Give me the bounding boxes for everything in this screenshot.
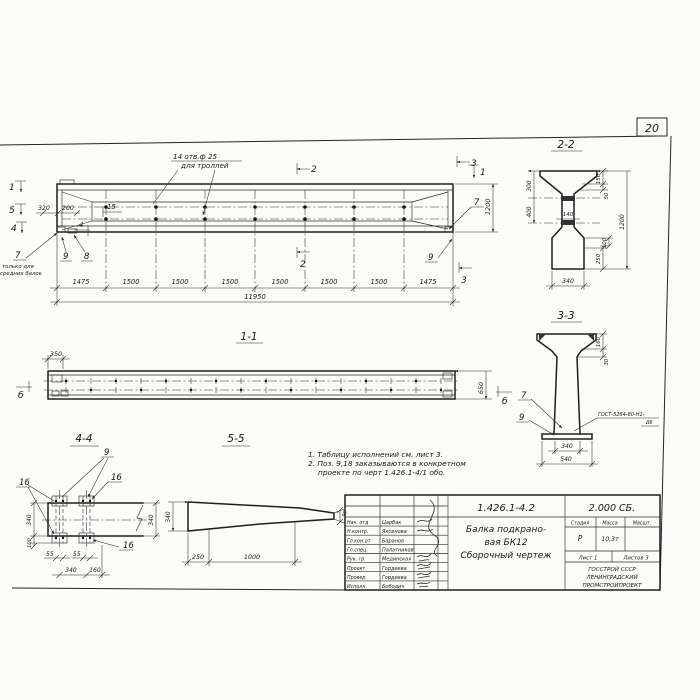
value-mass: 10,3т: [601, 536, 619, 543]
base-plate-3-3: [542, 434, 592, 439]
signature-squiggle: [417, 519, 433, 531]
pos-9-4-4: 9: [104, 448, 109, 458]
dim-340-bottom-4-4: 340: [65, 567, 77, 574]
stamp-role: Исполн.: [347, 584, 367, 590]
dim-50: 50: [604, 192, 610, 199]
page-number: 20: [645, 122, 659, 135]
dim-1200-2-2: 1200: [619, 214, 626, 230]
span-dim: 1500: [321, 278, 338, 286]
weld-note-line2: Δ6: [645, 420, 653, 426]
frame-right-line: [660, 136, 671, 590]
stamp-role: Гл.кон.от: [347, 538, 371, 544]
dim-340-left-4-4: 340: [27, 514, 33, 525]
pos-7-note1: только для: [2, 264, 35, 270]
org-line3: ПРОМСТРОЙПРОЕКТ: [583, 582, 643, 589]
header-scale: Масшт.: [633, 521, 651, 527]
sheet-count: Листов 3: [622, 556, 649, 562]
dim-340-right-4-4: 340: [149, 514, 155, 525]
dim-320: 320: [38, 205, 50, 212]
section-mark-1-right: 1: [480, 168, 486, 178]
span-dim: 1500: [222, 278, 239, 286]
dim-540: 540: [560, 456, 572, 463]
left-section-marks: 1 5 4: [9, 181, 27, 234]
dim-30: 30: [604, 358, 610, 365]
dim-55-b: 55: [73, 551, 81, 558]
pos-16-left: 16: [19, 478, 30, 488]
pos-16-right: 16: [111, 473, 122, 483]
org-line1: ГОССТРОЙ СССР: [588, 566, 636, 573]
dim-250-5-5: 250: [192, 553, 204, 561]
stamp-name: Гордеева: [382, 566, 407, 572]
flange-chamfers: [539, 334, 594, 341]
doc-number: 1.426.1-4.2: [477, 503, 535, 514]
note-line-3: проекте по черт 1.426.1-4/1 обо.: [318, 468, 445, 477]
mark-5-arrow: [15, 204, 26, 215]
anchor-bolts: [56, 501, 90, 538]
title-block: 1.426.1-4.2 2.000 СБ. Балка подкрано- ва…: [345, 495, 660, 590]
section-title-3-3: 3-3: [557, 310, 574, 322]
pos-7-right-leader: [449, 207, 484, 229]
mark-b-right: б: [502, 397, 508, 407]
section-3-3: 3-3 160 30 7 9 ГОСТ-5264-80-Н1- Δ6 340 5…: [516, 310, 659, 467]
total-dim: 11950: [244, 293, 266, 301]
signatures: [417, 500, 439, 587]
label-15: 15: [107, 203, 116, 211]
dim-100-line: [584, 235, 613, 249]
drawing-title-line2: вая БК12: [484, 538, 527, 548]
break-line-4-4: [136, 505, 143, 531]
dim-160-4-4: 160: [89, 567, 101, 574]
section-title-2-2: 2-2: [557, 139, 574, 151]
signature-squiggle: [417, 554, 431, 561]
note-line-2: 2. Поз. 9,18 заказываются в конкретном: [308, 459, 466, 468]
dim-250: 250: [596, 253, 602, 264]
pos-9-3-3: 9: [519, 413, 524, 423]
pos-9-right: 9: [428, 253, 433, 263]
header-mass: Масса: [602, 521, 617, 527]
signature-squiggle: [417, 572, 431, 578]
dim-650: 650: [477, 382, 485, 394]
pos-7-note2: средних балок: [0, 271, 43, 277]
span-dim: 1500: [272, 278, 289, 286]
dim-160: 160: [596, 336, 602, 347]
stamp-role: Гл.спец.: [347, 548, 368, 554]
section-mark-2-top: 2: [311, 165, 317, 175]
mark-4-inner: 4: [79, 221, 83, 229]
stamp-name: Мединская: [382, 557, 411, 563]
pos-8: 8: [84, 252, 90, 262]
notes: 1. Таблицу исполнений см. лист 3. 2. Поз…: [308, 450, 466, 477]
centerlines-1-1: [44, 381, 460, 390]
sheet-frame: 20: [0, 118, 671, 590]
drawing-sheet: 20 14 отв.ф 25 для троллей 1 5 4 320: [0, 0, 700, 700]
mark-1-arrow: [15, 181, 26, 192]
span-dim: 1500: [371, 278, 388, 286]
section-1-1: 1-1 350 650 б б: [16, 331, 512, 407]
stamp-role: Нач. отд: [347, 520, 369, 526]
drawing-title-line1: Балка подкрано-: [466, 525, 546, 535]
dim-340-5-5: 340: [166, 511, 172, 522]
dim-340-3-3: 340: [561, 443, 573, 450]
pos-7-3-3: 7: [521, 391, 527, 401]
end-detail-e: [443, 391, 452, 397]
stamp-name: Палатников: [382, 548, 414, 554]
pos-16-bottom: 16: [123, 541, 134, 551]
hole-note-line2: для троллей: [180, 161, 229, 170]
mark-4-arrow: [16, 222, 27, 233]
stamp-role: Рук. гр.: [347, 557, 366, 563]
signature-squiggle: [417, 582, 430, 587]
org-line2: ЛЕНИНГРАДСКИЙ: [585, 574, 638, 581]
signature-flourish: [429, 500, 439, 556]
note-line-1: 1. Таблицу исполнений см. лист 3.: [308, 450, 443, 459]
dim-650-line: [455, 371, 492, 399]
dim-1200: 1200: [484, 198, 492, 215]
stamp-name: Царбак: [382, 520, 401, 526]
section-4-4: 4-4 9 16 16 16 340 100 340 55 55 340 160: [16, 433, 160, 578]
doc-code: 2.000 СБ.: [589, 503, 635, 514]
section-mark-3-bottom: 3: [461, 276, 467, 286]
stamp-name: Яксенова: [381, 529, 407, 535]
bolt-ticks-1-1: [66, 378, 441, 393]
dim-340-2-2: 340: [562, 278, 574, 285]
pos-9-leader-3-3: [516, 420, 554, 435]
dim-300: 300: [527, 180, 533, 191]
value-stage: Р: [578, 534, 583, 543]
pos-7-left: 7: [15, 251, 21, 261]
dim-400: 400: [527, 206, 533, 217]
section-mark-5: 5: [9, 206, 15, 216]
pos-9-leaders-4-4: [62, 457, 114, 497]
bolt-dots-1-1: [66, 381, 441, 390]
stamp-role: Проект.: [347, 566, 367, 572]
section-mark-1: 1: [9, 183, 15, 193]
weld-strip-bottom: [561, 220, 575, 225]
mark-3-bottom-flag: [459, 262, 472, 273]
dim-100: 100: [602, 237, 608, 248]
drawing-title-line3: Сборочный чертеж: [460, 551, 552, 561]
stamp-name: Бободич: [382, 584, 404, 590]
dim-200: 200: [62, 205, 74, 212]
main-elevation-view: 14 отв.ф 25 для троллей 1 5 4 320 200 15…: [0, 152, 498, 306]
pos-16-right-leader: [92, 482, 122, 499]
span-dim: 1500: [123, 278, 140, 286]
section-title-4-4: 4-4: [75, 433, 92, 445]
section-title-5-5: 5-5: [227, 433, 244, 445]
hole-note-line1: 14 отв.ф 25: [173, 152, 218, 161]
stamp-name: Баранов: [382, 538, 404, 544]
weld-note-line1: ГОСТ-5264-80-Н1-: [598, 412, 645, 418]
plan-inner-lines-1-1: [48, 375, 455, 395]
span-dim: 1500: [172, 278, 189, 286]
sheet-number: Лист 1: [578, 556, 598, 562]
dim-150: 150: [596, 173, 602, 184]
pos-7-right: 7: [474, 198, 480, 208]
section-mark-2-bottom: 2: [300, 260, 306, 270]
mark-3-top-flag: [457, 156, 470, 167]
dim-140: 140: [563, 212, 574, 218]
section-mark-4: 4: [11, 224, 17, 234]
section-title-1-1: 1-1: [240, 331, 257, 343]
stamp-role: Провер.: [347, 575, 367, 581]
section-2-2: 2-2 300 400 150 50 1200 100 250 140 340: [527, 139, 631, 290]
frame-bottom-line: [12, 588, 345, 590]
mark-b-left: б: [18, 391, 24, 401]
dim-1000: 1000: [244, 553, 260, 561]
dim-100-4-4: 100: [27, 537, 33, 548]
end-detail-d: [443, 373, 452, 379]
stamp-role: Н.контр.: [347, 529, 368, 535]
dim-350: 350: [50, 350, 62, 358]
span-dim: 1475: [420, 278, 437, 286]
dim-340-160-line: [52, 545, 110, 578]
gusset-outline-5-5: [188, 502, 334, 531]
plan-outline-4-4: [48, 503, 143, 536]
mark-2-bottom-flag: [297, 247, 310, 258]
signature-squiggle: [417, 563, 431, 569]
mark-b-right-flag: [496, 386, 512, 397]
header-stage: Стадия: [571, 521, 590, 527]
pos-9-left: 9: [63, 252, 68, 262]
dim-55-a: 55: [46, 551, 54, 558]
mark-2-top-flag: [297, 163, 310, 174]
span-dim: 1475: [73, 278, 90, 286]
weld-strip-top: [561, 196, 575, 201]
stamp-name: Гордеева: [382, 575, 407, 581]
dim-50-line: [579, 184, 608, 193]
